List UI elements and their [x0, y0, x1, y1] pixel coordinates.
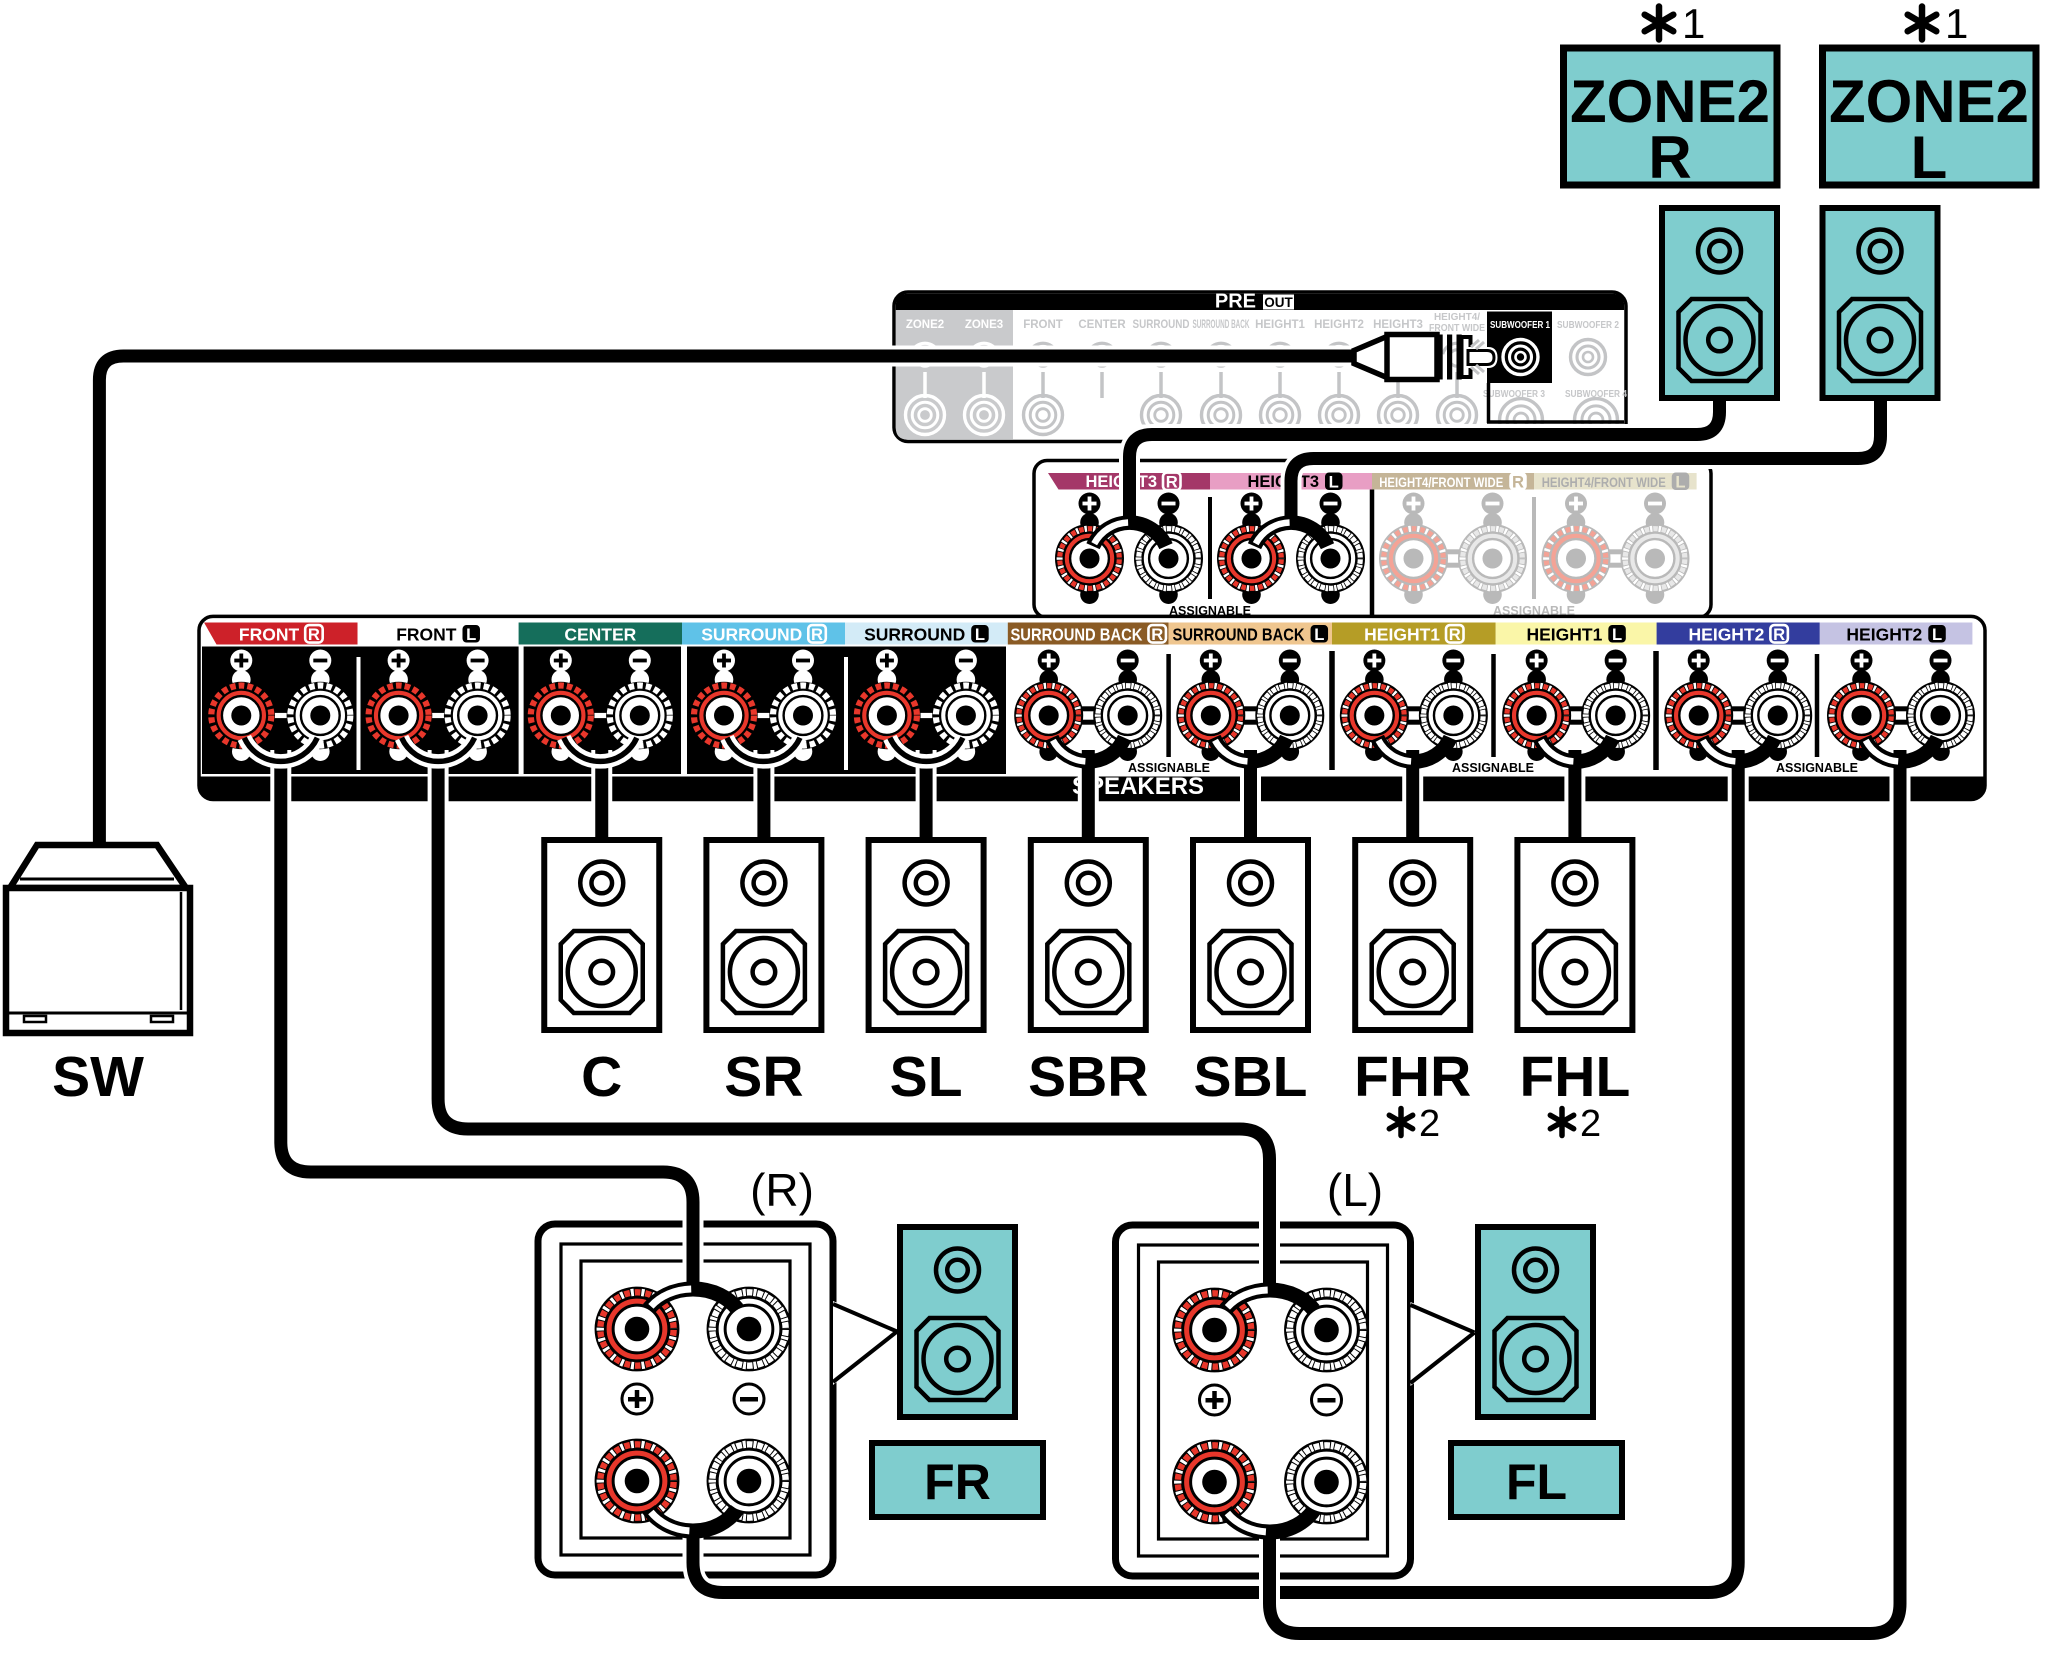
svg-text:R: R — [1151, 625, 1163, 644]
svg-text:HEIGHT1: HEIGHT1 — [1255, 319, 1305, 331]
svg-text:ASSIGNABLE: ASSIGNABLE — [1452, 761, 1534, 775]
svg-text:L: L — [975, 625, 985, 644]
svg-text:CENTER: CENTER — [1078, 319, 1126, 331]
svg-text:1: 1 — [1682, 0, 1705, 47]
svg-text:SBL: SBL — [1194, 1045, 1308, 1109]
svg-text:SURROUND: SURROUND — [701, 625, 802, 645]
svg-text:L: L — [1314, 625, 1324, 644]
svg-text:R: R — [1166, 473, 1178, 492]
svg-text:HEIGHT2: HEIGHT2 — [1846, 625, 1922, 645]
svg-text:SURROUND: SURROUND — [864, 625, 965, 645]
svg-text:R: R — [1773, 625, 1785, 644]
svg-text:HEIGHT2: HEIGHT2 — [1314, 319, 1364, 331]
svg-text:SUBWOOFER 3: SUBWOOFER 3 — [1483, 389, 1545, 400]
svg-text:SUBWOOFER 2: SUBWOOFER 2 — [1557, 320, 1619, 331]
svg-text:FRONT: FRONT — [1023, 319, 1063, 331]
svg-text:C: C — [581, 1045, 622, 1109]
svg-text:HEIGHT4/FRONT WIDE: HEIGHT4/FRONT WIDE — [1542, 475, 1666, 490]
svg-text:FR: FR — [924, 1454, 991, 1510]
svg-text:R: R — [811, 625, 823, 644]
svg-text:FHR: FHR — [1354, 1045, 1471, 1109]
svg-text:SR: SR — [724, 1045, 803, 1109]
svg-text:SUBWOOFER 4: SUBWOOFER 4 — [1565, 389, 1627, 400]
svg-text:R: R — [1648, 124, 1691, 191]
svg-text:FRONT: FRONT — [396, 625, 457, 645]
svg-text:ZONE3: ZONE3 — [965, 319, 1003, 331]
svg-text:HEIGHT4/FRONT WIDE: HEIGHT4/FRONT WIDE — [1379, 475, 1503, 490]
svg-text:ZONE2: ZONE2 — [906, 319, 944, 331]
svg-text:R: R — [1512, 473, 1524, 492]
svg-text:OUT: OUT — [1264, 295, 1293, 310]
svg-text:CENTER: CENTER — [564, 625, 636, 645]
svg-text:(L): (L) — [1327, 1164, 1383, 1216]
svg-text:2: 2 — [1419, 1103, 1440, 1145]
svg-text:1: 1 — [1945, 0, 1968, 47]
svg-text:SL: SL — [890, 1045, 963, 1109]
svg-text:HEIGHT2: HEIGHT2 — [1689, 625, 1765, 645]
svg-text:FRONT: FRONT — [239, 625, 300, 645]
svg-text:SURROUND: SURROUND — [1133, 319, 1190, 331]
svg-text:SW: SW — [52, 1045, 144, 1109]
svg-text:ASSIGNABLE: ASSIGNABLE — [1776, 761, 1858, 775]
svg-text:SURROUND BACK: SURROUND BACK — [1010, 625, 1142, 645]
svg-text:(R): (R) — [750, 1164, 814, 1216]
svg-text:HEIGHT1: HEIGHT1 — [1364, 625, 1440, 645]
svg-text:FL: FL — [1506, 1454, 1567, 1510]
svg-text:HEIGHT4/: HEIGHT4/ — [1434, 312, 1480, 323]
svg-text:SUBWOOFER 1: SUBWOOFER 1 — [1490, 320, 1550, 331]
svg-text:SURROUND BACK: SURROUND BACK — [1193, 319, 1250, 331]
svg-text:L: L — [1932, 625, 1942, 644]
svg-text:R: R — [1449, 625, 1461, 644]
svg-text:L: L — [1675, 473, 1685, 492]
svg-text:2: 2 — [1580, 1103, 1601, 1145]
svg-text:PRE: PRE — [1215, 291, 1256, 313]
svg-text:L: L — [1911, 124, 1948, 191]
svg-text:HEIGHT3: HEIGHT3 — [1373, 319, 1423, 331]
svg-text:FHL: FHL — [1519, 1045, 1630, 1109]
svg-text:L: L — [466, 625, 476, 644]
svg-text:SBR: SBR — [1028, 1045, 1148, 1109]
svg-text:R: R — [308, 625, 320, 644]
svg-text:SURROUND BACK: SURROUND BACK — [1173, 625, 1305, 645]
svg-text:L: L — [1329, 473, 1339, 492]
svg-text:L: L — [1612, 625, 1622, 644]
svg-text:HEIGHT1: HEIGHT1 — [1526, 625, 1602, 645]
